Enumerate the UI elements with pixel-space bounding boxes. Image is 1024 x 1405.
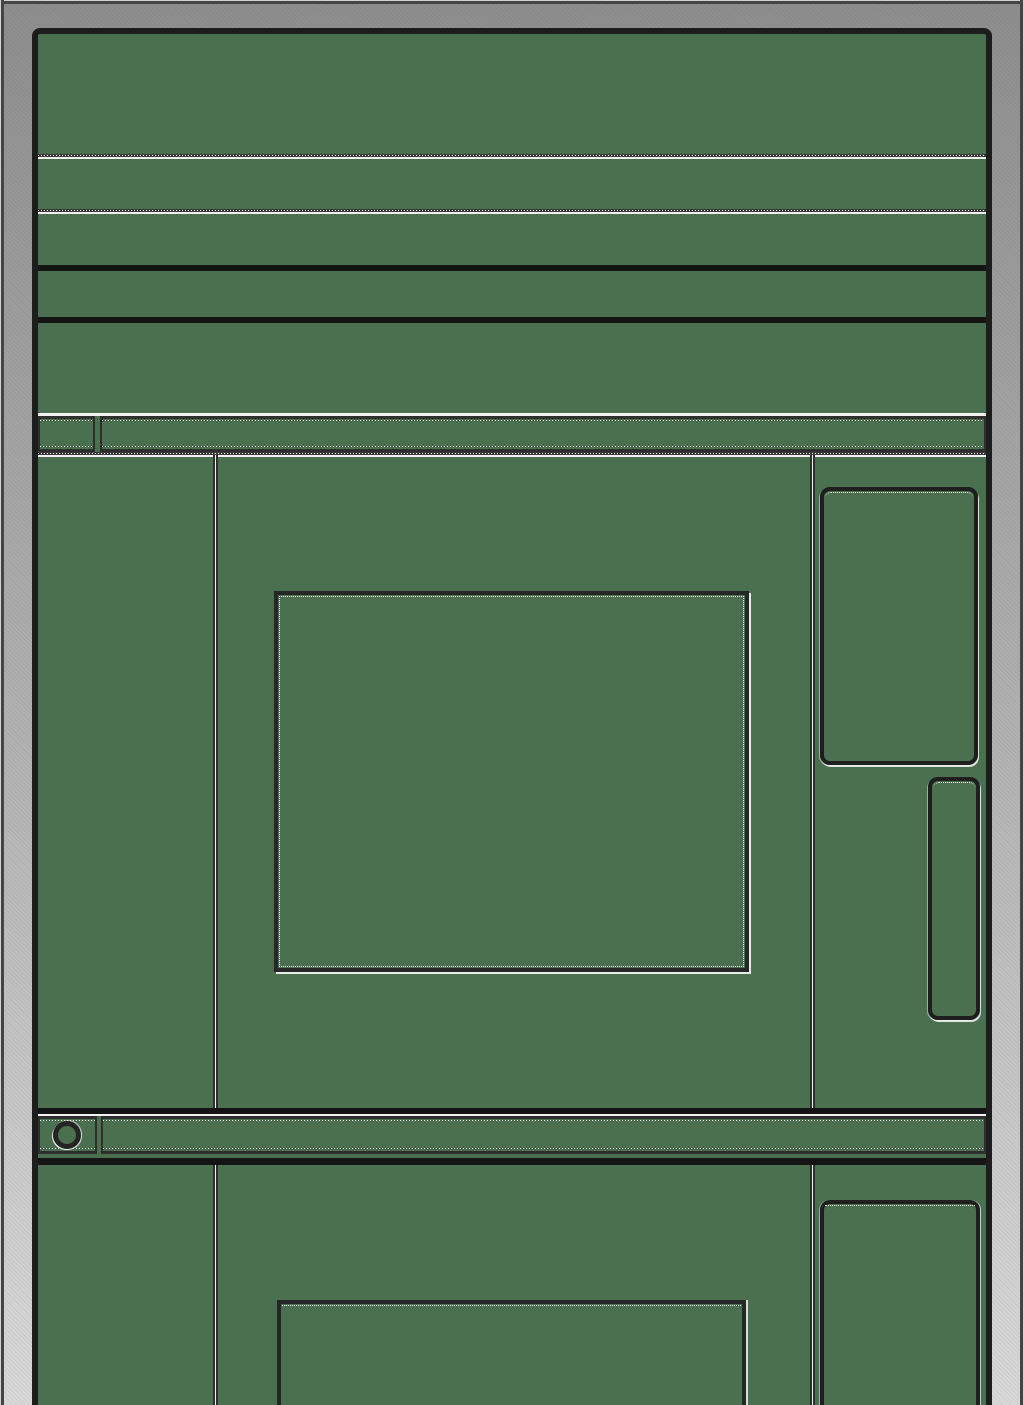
frame-edge-top bbox=[0, 0, 1024, 4]
content-viewport bbox=[274, 591, 749, 972]
window-content bbox=[38, 34, 986, 1405]
status-bar bbox=[101, 1116, 986, 1154]
frame-edge-left bbox=[0, 0, 4, 1405]
content-viewport-2 bbox=[277, 1300, 746, 1405]
center-panel bbox=[218, 455, 810, 1108]
preview-box-2 bbox=[820, 1200, 980, 1405]
toolbar-rule-2 bbox=[38, 317, 986, 323]
monitor-frame bbox=[0, 0, 1024, 1405]
header-band bbox=[38, 34, 986, 154]
menu-separator-1 bbox=[38, 154, 986, 159]
tab-strip[interactable] bbox=[100, 416, 986, 452]
center-panel-2 bbox=[218, 1165, 810, 1405]
preview-box bbox=[820, 487, 978, 765]
scrollbar-thumb[interactable] bbox=[928, 777, 980, 1020]
status-circle-icon bbox=[53, 1121, 81, 1149]
status-icon-button[interactable] bbox=[38, 1116, 97, 1154]
secondary-section bbox=[38, 1165, 986, 1405]
side-panel-right bbox=[815, 455, 986, 1108]
sidebar-panel bbox=[38, 455, 213, 1108]
status-bottom-rule bbox=[38, 1158, 986, 1165]
app-window bbox=[32, 28, 992, 1405]
side-panel-right-2 bbox=[815, 1165, 986, 1405]
frame-edge-right bbox=[1020, 0, 1024, 1405]
sidebar-panel-2 bbox=[38, 1165, 213, 1405]
tab-button[interactable] bbox=[38, 416, 95, 452]
menu-separator-2 bbox=[38, 209, 986, 214]
main-area bbox=[38, 455, 986, 1108]
toolbar-rule-1 bbox=[38, 265, 986, 271]
